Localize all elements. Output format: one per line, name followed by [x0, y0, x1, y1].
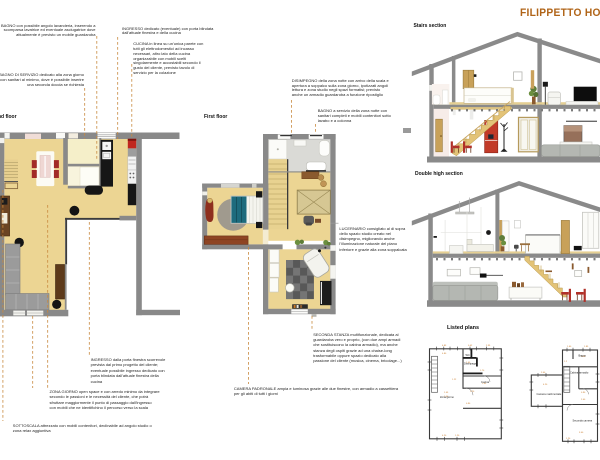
svg-text:Cabina armadio: Cabina armadio [570, 371, 589, 375]
svg-text:WC: WC [466, 353, 470, 357]
svg-text:2.40: 2.40 [541, 372, 546, 374]
svg-text:4.20: 4.20 [543, 384, 548, 386]
svg-text:1.22: 1.22 [452, 379, 457, 381]
svg-text:3.40: 3.40 [579, 432, 584, 434]
svg-text:Cucina: Cucina [481, 380, 490, 384]
svg-text:0.42: 0.42 [468, 345, 473, 347]
svg-text:1.2: 1.2 [564, 361, 568, 363]
svg-text:0.90: 0.90 [581, 392, 586, 394]
svg-text:1.20: 1.20 [455, 435, 460, 437]
svg-text:Camera matrimoniale: Camera matrimoniale [537, 392, 562, 396]
svg-text:Seconda camera: Seconda camera [573, 419, 593, 423]
svg-text:Zona giorno: Zona giorno [440, 395, 454, 399]
svg-text:1.45: 1.45 [444, 392, 449, 394]
svg-text:2.20: 2.20 [470, 391, 475, 393]
svg-text:1.60: 1.60 [567, 346, 572, 348]
svg-text:Bagno: Bagno [579, 354, 587, 358]
svg-text:2.35: 2.35 [486, 345, 491, 347]
svg-text:Disimpegno: Disimpegno [464, 362, 478, 366]
svg-text:4.20: 4.20 [442, 435, 447, 437]
svg-text:4.83: 4.83 [442, 345, 447, 347]
svg-text:1.85: 1.85 [584, 346, 589, 348]
svg-text:1.70: 1.70 [480, 370, 485, 372]
svg-text:4.80: 4.80 [442, 353, 447, 355]
svg-text:1.20: 1.20 [566, 438, 571, 440]
svg-text:2.00: 2.00 [581, 399, 586, 401]
svg-text:0.90: 0.90 [466, 403, 471, 405]
